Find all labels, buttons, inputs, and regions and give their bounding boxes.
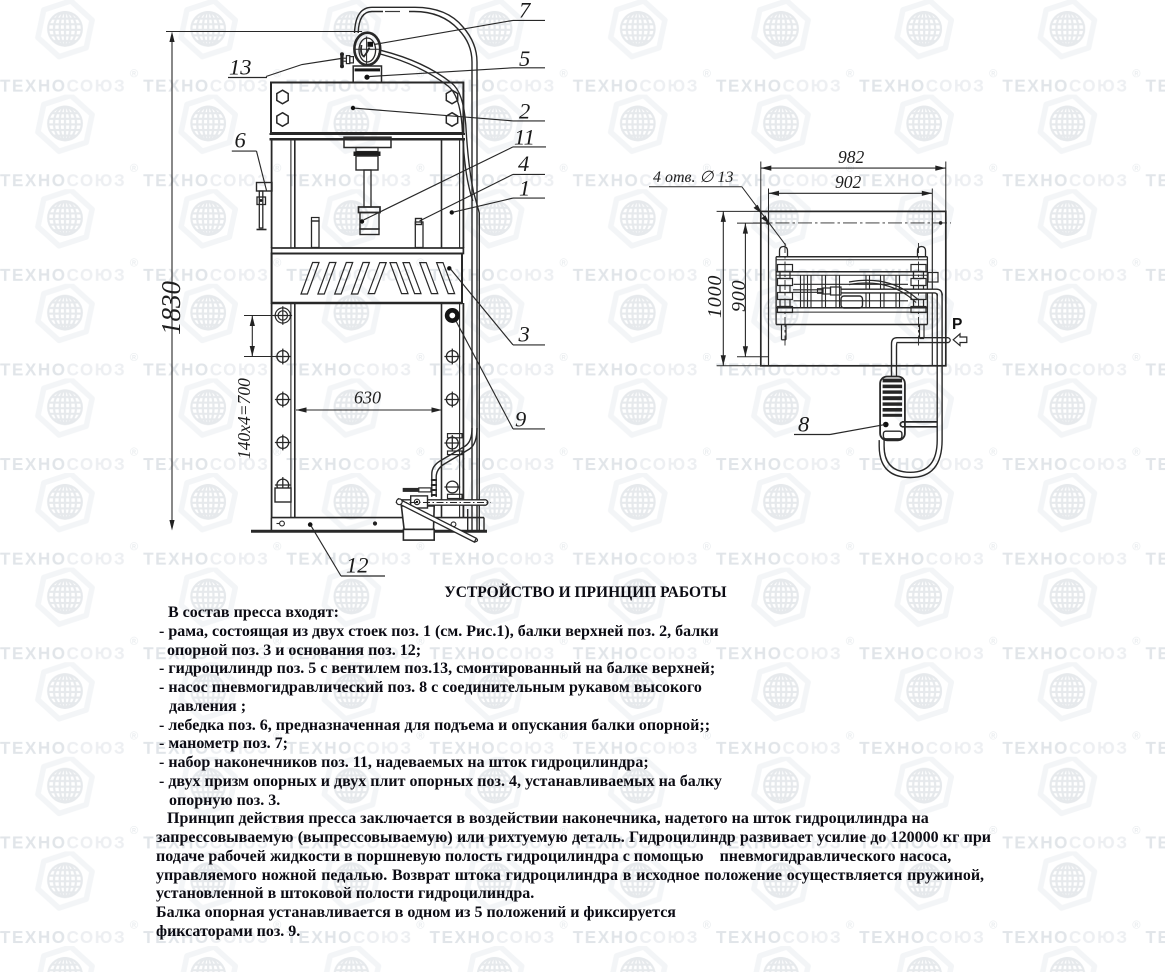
svg-text:13: 13: [229, 55, 252, 80]
svg-text:2: 2: [519, 99, 530, 124]
svg-text:982: 982: [838, 147, 865, 167]
svg-text:1: 1: [519, 176, 530, 201]
svg-text:Р: Р: [952, 316, 962, 333]
svg-text:7: 7: [519, 0, 532, 23]
svg-text:1830: 1830: [156, 281, 186, 336]
svg-text:630: 630: [354, 388, 381, 408]
svg-text:9: 9: [515, 407, 526, 432]
svg-text:4: 4: [518, 151, 529, 176]
svg-text:3: 3: [518, 322, 530, 347]
svg-text:900: 900: [728, 280, 750, 312]
svg-text:902: 902: [835, 172, 862, 192]
svg-text:11: 11: [514, 125, 535, 150]
svg-text:8: 8: [798, 412, 809, 437]
svg-text:6: 6: [235, 128, 247, 153]
svg-text:1000: 1000: [704, 275, 726, 318]
svg-text:140x4=700: 140x4=700: [234, 378, 254, 459]
svg-text:4 отв. ∅ 13: 4 отв. ∅ 13: [653, 169, 733, 186]
svg-text:12: 12: [346, 553, 369, 578]
